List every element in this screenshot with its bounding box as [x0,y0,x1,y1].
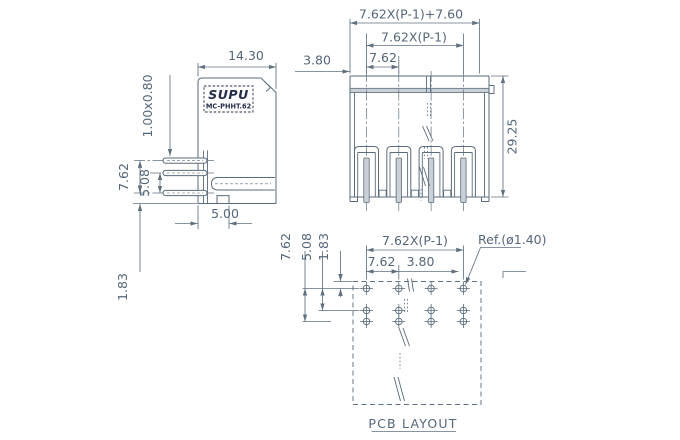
pcb-hole [457,282,470,295]
pcb-hole [392,282,405,295]
pcb-break-marks [394,279,414,402]
slot-pin [396,158,401,203]
side-corner-notch [265,82,271,92]
pcb-hole [425,315,438,328]
front-view: 7.62X(P-1)+7.60 7.62X(P-1) 7.62 3.80 29.… [295,7,520,212]
dim-pcb-pitch-label: 7.62 [368,254,396,269]
brand-logo: SUPU [208,87,248,102]
dim-body-width-label: 14.30 [228,48,264,63]
pcb-layout: 7.62 5.08 1.83 7.62X(P-1) 7.62 3.80 Ref.… [278,232,547,432]
dim-front-depth: 5.00 [175,206,252,230]
slot-pin [428,158,433,203]
dim-col-span-label: 7.62X(P-1) [382,233,448,248]
pcb-row-dimensions: 7.62 5.08 1.83 [278,233,360,321]
hole-reference-callout: Ref.(ø1.40) [466,232,547,285]
slot-pin [364,158,369,203]
dim-height-label: 29.25 [505,119,520,155]
dim-edge-offset-label: 1.83 [316,233,331,261]
right-tab [489,86,494,94]
pcb-hole [360,315,373,328]
pcb-hole [425,282,438,295]
slot-pin [461,158,466,203]
dim-half-pitch-label: 3.80 [407,254,435,269]
model-number: MC-PHHT.62 [206,103,252,111]
dim-edge-to-pin-label: 3.80 [303,53,331,68]
dim-pin-row-gap-label: 5.08 [137,169,152,197]
bottom-foot [217,196,229,204]
connector-drawing: SUPU MC-PHHT.62 14.30 1.00x0.80 7.62 [0,0,680,440]
dim-total-length-label: 7.62X(P-1)+7.60 [359,7,463,22]
dim-row-gap-label: 5.08 [299,233,314,261]
pcb-hole [392,315,405,328]
dim-pin-bottom-offset-label: 1.83 [115,273,130,301]
pcb-hole [360,282,373,295]
top-band [350,88,489,92]
dim-pin-bottom-offset: 1.83 [115,184,197,301]
dim-pin-cross-section-label: 1.00x0.80 [140,74,155,137]
side-view: SUPU MC-PHHT.62 14.30 1.00x0.80 7.62 [115,48,276,301]
technical-drawing-page: SUPU MC-PHHT.62 14.30 1.00x0.80 7.62 [0,0,680,440]
pcb-column-dimensions: 7.62X(P-1) 7.62 3.80 [367,233,464,280]
dim-pin-span-label: 7.62X(P-1) [381,30,447,45]
dim-pitch-label: 7.62 [369,50,397,65]
dim-pin-row-span-label: 7.62 [116,163,131,191]
pcb-layout-caption: PCB LAYOUT [368,416,457,431]
dim-pin-cross-section: 1.00x0.80 [140,74,170,156]
pcb-holes [360,282,470,328]
pcb-hole [457,315,470,328]
pcb-outline [353,282,481,405]
dim-body-width: 14.30 [198,48,276,89]
hole-reference-label: Ref.(ø1.40) [478,232,547,247]
pcb-corner-mark [503,272,526,279]
dim-row-span-label: 7.62 [278,233,293,261]
dim-front-depth-label: 5.00 [211,206,239,221]
